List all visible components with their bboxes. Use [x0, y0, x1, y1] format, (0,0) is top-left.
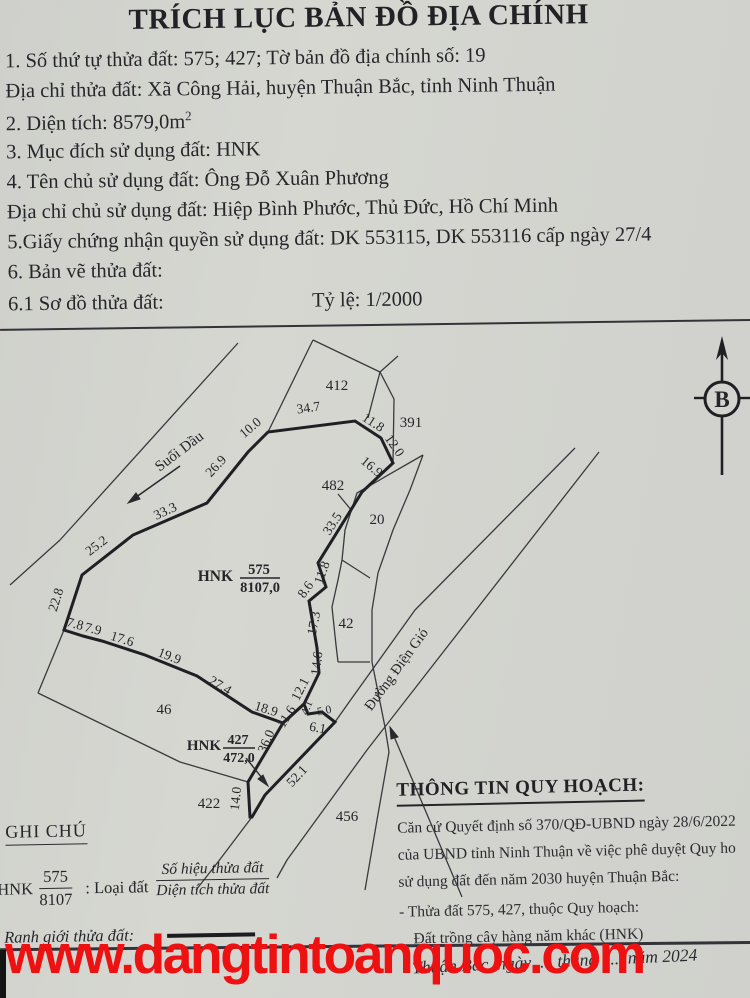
parcel-427-number: 427	[228, 733, 249, 748]
legend-plot-number: 575	[39, 867, 72, 890]
stream-name-label: Suối Dầu	[152, 428, 207, 475]
measure-label: 12.1	[288, 675, 312, 703]
measure-label: 27.4	[206, 673, 234, 698]
measure-label: 19.9	[156, 645, 184, 668]
planning-heading: THÔNG TIN QUY HOẠCH:	[396, 775, 645, 807]
compass-north-letter: B	[714, 387, 729, 412]
measure-label: 10.0	[236, 414, 264, 441]
parcel-427-landuse: HNK	[187, 738, 222, 754]
measure-label: 6.1	[308, 719, 327, 737]
parcel-412-top-edge	[313, 340, 398, 372]
stream-flow-arrow-icon	[128, 493, 140, 503]
measure-label: 16.9	[358, 453, 386, 480]
measure-label: 34.7	[296, 398, 322, 416]
measure-label: 12.0	[382, 431, 408, 459]
parcel-label-456: 456	[336, 809, 359, 825]
measure-label: 22.8	[45, 586, 66, 613]
parcel-575-annotation: HNK 575 8107,0	[198, 562, 280, 596]
parcel-label-412: 412	[326, 378, 349, 394]
stream-far-bank-line	[10, 343, 238, 585]
parcel-46-left-edge	[38, 630, 64, 693]
measure-label: 11.8	[360, 410, 388, 435]
parcel-427-annotation: HNK 427 472,0	[187, 733, 255, 766]
legend-explain-top: Số hiệu thửa đất	[156, 859, 269, 881]
parcel-label-42: 42	[339, 616, 354, 632]
legend-explain-bottom: Diện tích thửa đất	[156, 879, 269, 900]
legend-plot-area: 8107	[39, 889, 72, 911]
boundary-measurements: 34.7 10.0 26.9 33.3 25.2 22.8 7.8 7.9 17…	[45, 398, 408, 811]
notes-heading: GHI CHÚ	[5, 820, 87, 845]
measure-label: 18.9	[253, 698, 280, 719]
scanned-cadastral-document: TRÍCH LỤC BẢN ĐỒ ĐỊA CHÍNH 1. Số thứ tự …	[0, 0, 750, 998]
parcel-575-number: 575	[248, 562, 270, 578]
parcel-412-left-edge	[268, 340, 313, 432]
parcel-label-422: 422	[198, 796, 221, 812]
planning-leader-arrow-icon	[390, 727, 398, 739]
parcel-label-482: 482	[322, 478, 345, 494]
measure-label: 5.0	[316, 704, 333, 719]
legend-fraction: 575 8107	[39, 867, 73, 911]
parcel-label-20: 20	[370, 512, 385, 528]
north-compass: B	[694, 336, 750, 475]
legend-landtype-label: : Loại đất	[85, 877, 149, 898]
stream-flow-arrow-line	[132, 466, 180, 500]
legend-landuse-code: HNK	[0, 879, 33, 900]
parcel-label-46: 46	[157, 702, 173, 718]
parcel-427-arrow-icon	[258, 775, 268, 786]
measure-label: 14.0	[227, 786, 244, 811]
parcel-575-area: 8107,0	[240, 580, 280, 596]
measure-label: 11.8	[311, 559, 333, 586]
measure-label: 33.3	[151, 499, 179, 523]
parcel-482-leader-line	[338, 494, 352, 511]
measure-label: 17.6	[109, 628, 136, 649]
legend-explain-fraction: Số hiệu thửa đất Diện tích thửa đất	[156, 859, 270, 900]
measure-label: 52.1	[283, 762, 310, 790]
parcel-575-landuse: HNK	[198, 568, 233, 585]
parcel-label-391: 391	[400, 415, 423, 431]
parcel-427-area: 472,0	[223, 751, 255, 766]
measure-label: 14.6	[308, 651, 326, 677]
measure-label: 36.0	[254, 727, 277, 755]
measure-label: 17.3	[304, 610, 323, 636]
parcel-20-42-divider	[342, 560, 370, 578]
measure-label: 26.9	[202, 452, 229, 480]
scan-edge-artifact	[0, 950, 6, 998]
watermark-url: www.dangtintoanquoc.com	[5, 922, 644, 986]
